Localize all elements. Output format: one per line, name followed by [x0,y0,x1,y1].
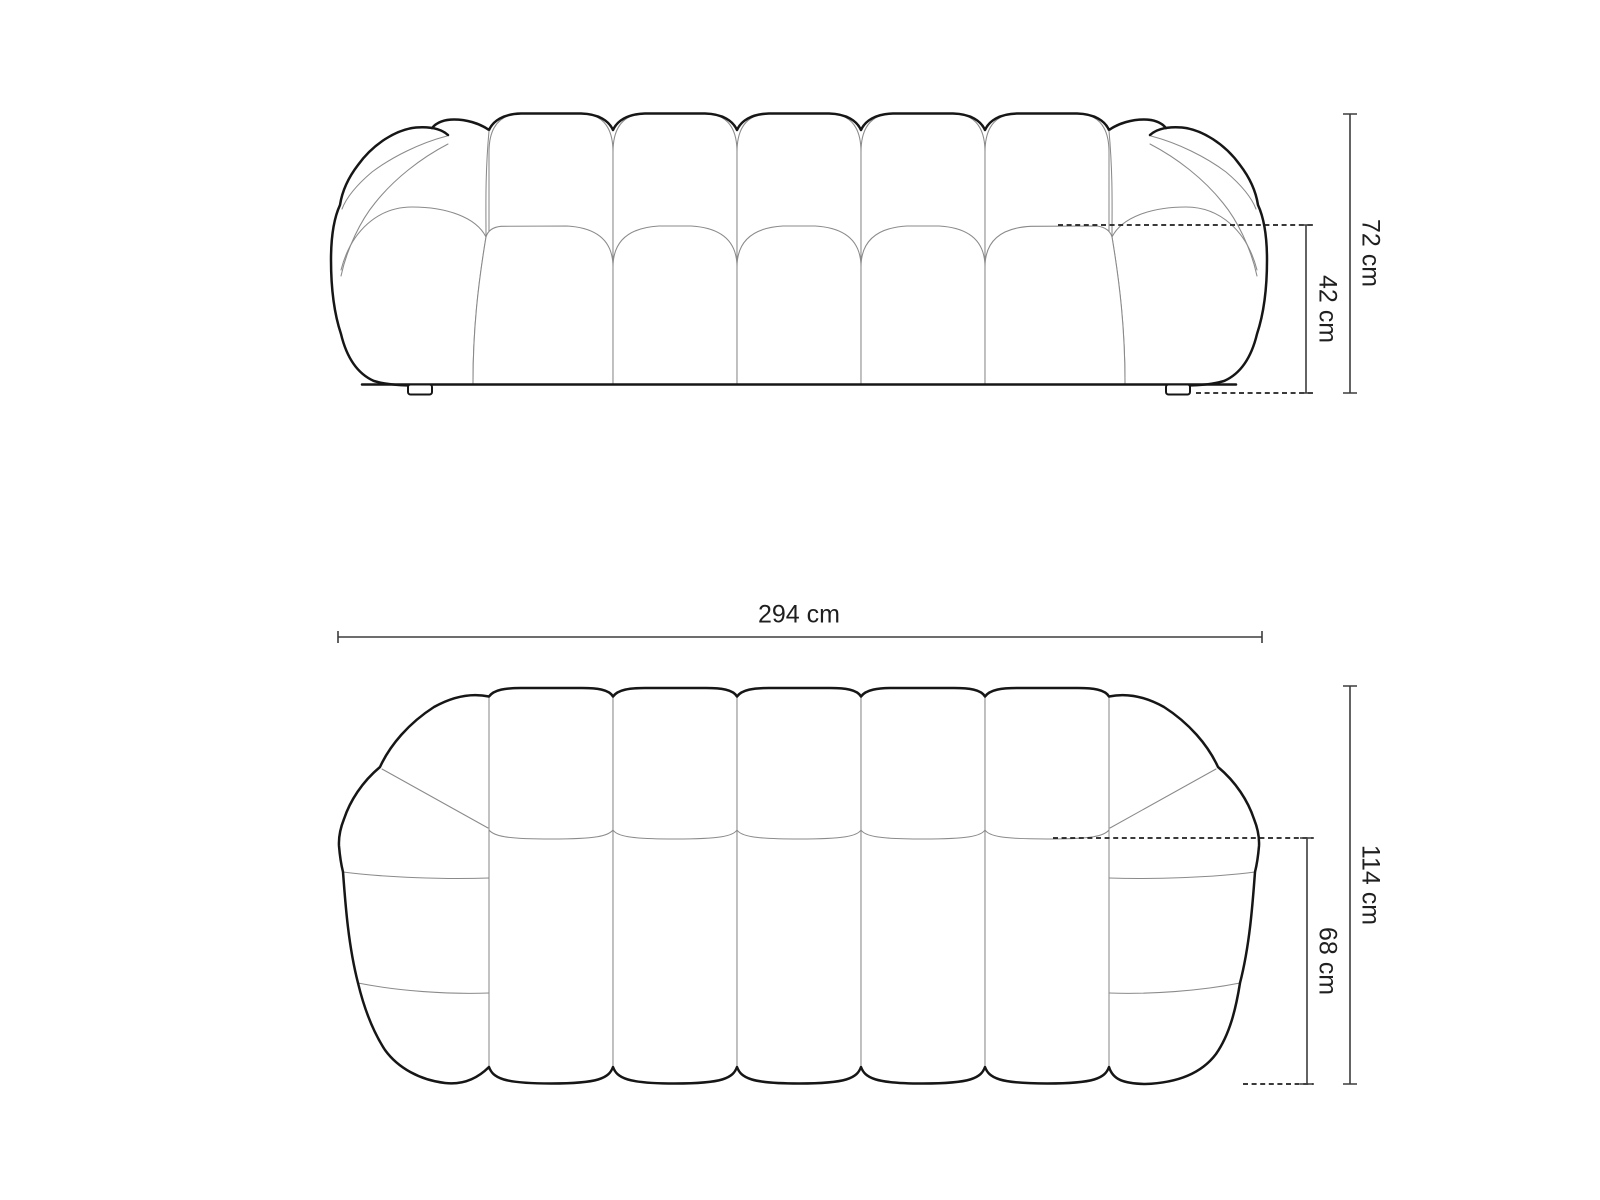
plan-total-depth-dimension: 114 cm [1343,686,1384,1084]
plan-left-corner-diagonal [382,769,488,828]
plan-channels [489,689,1109,1084]
total-height-label: 72 cm [1356,219,1384,287]
top-plan-view: 294 cm 68 cm [338,601,1384,1084]
front-seat-bubbles [473,226,1125,384]
front-total-height-dimension: 72 cm [1343,114,1384,393]
front-right-arm [1112,127,1267,385]
total-depth-label: 114 cm [1356,845,1384,925]
plan-right-arm-seam-1 [1109,872,1255,878]
plan-right-arm-seam-2 [1109,983,1240,993]
front-seat-height-dimension: 42 cm [1299,225,1341,393]
plan-left-arm-seam-2 [358,983,489,993]
plan-left-arm-seam-1 [343,872,489,878]
seat-height-label: 42 cm [1313,275,1341,343]
sofa-dimension-diagram: 42 cm 72 cm 294 cm [0,0,1600,1200]
front-left-foot [408,385,432,395]
diagram-canvas: 42 cm 72 cm 294 cm [0,0,1600,1200]
total-width-label: 294 cm [758,601,840,629]
front-elevation-view: 42 cm 72 cm [331,114,1384,395]
plan-right-corner-diagonal [1110,769,1216,828]
front-left-arm [331,127,486,385]
plan-width-dimension: 294 cm [338,601,1262,643]
front-right-foot [1166,385,1190,395]
seat-depth-label: 68 cm [1313,927,1341,995]
plan-seat-depth-dimension: 68 cm [1300,838,1341,1084]
